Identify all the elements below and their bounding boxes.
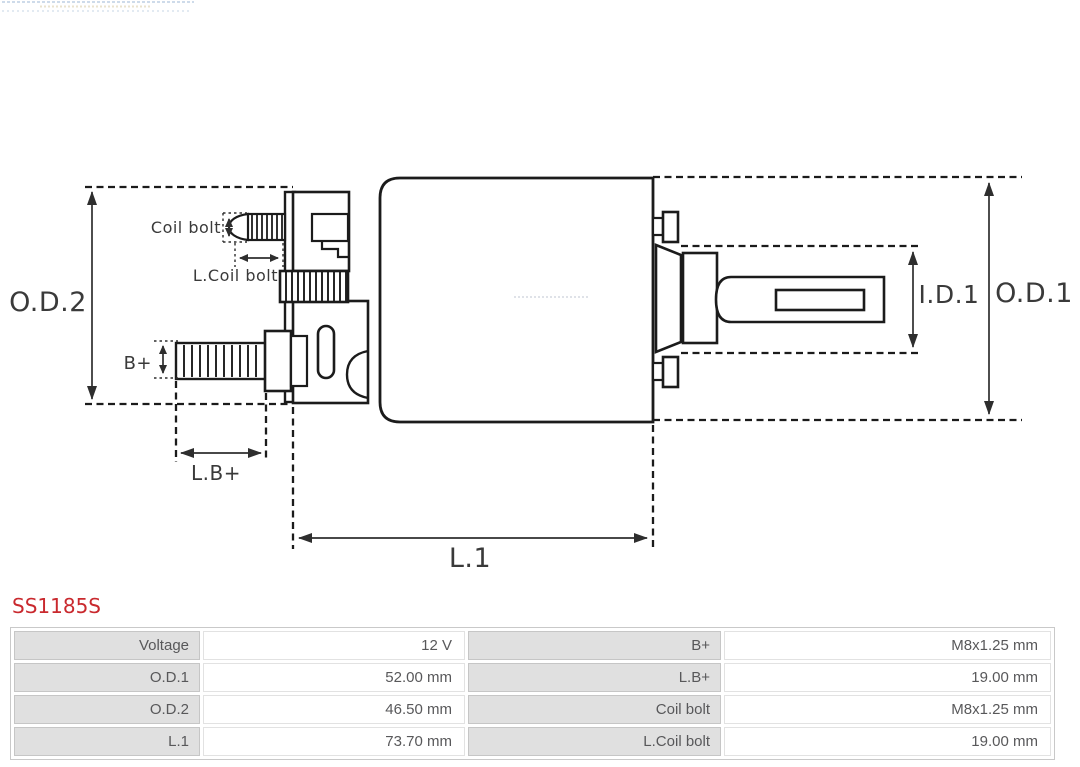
- solenoid-outline: [176, 178, 884, 422]
- table-row: L.1 73.70 mm L.Coil bolt 19.00 mm: [14, 727, 1051, 756]
- table-row: O.D.1 52.00 mm L.B+ 19.00 mm: [14, 663, 1051, 692]
- table-row: O.D.2 46.50 mm Coil bolt M8x1.25 mm: [14, 695, 1051, 724]
- spec-label-cell: Voltage: [14, 631, 200, 660]
- lb-label: L.B+: [191, 461, 241, 485]
- solenoid-technical-drawing: O.D.2 O.D.1 I.D.1 L.1 L.B+ B+ Coil bolt …: [0, 0, 1080, 592]
- housing-notch: [312, 214, 348, 241]
- od1-label: O.D.1: [995, 278, 1073, 309]
- spec-value-cell: M8x1.25 mm: [724, 631, 1051, 660]
- coil-bolt-sleeve: [280, 271, 348, 302]
- spec-label-cell: L.1: [14, 727, 200, 756]
- spec-value-cell: 19.00 mm: [724, 727, 1051, 756]
- spec-label-cell: L.B+: [468, 663, 721, 692]
- spec-value-cell: 19.00 mm: [724, 663, 1051, 692]
- rear-terminal-top: [653, 212, 678, 242]
- spec-value-cell: M8x1.25 mm: [724, 695, 1051, 724]
- b-plus-nut: [265, 331, 291, 391]
- product-diagram-page: O.D.2 O.D.1 I.D.1 L.1 L.B+ B+ Coil bolt …: [0, 0, 1080, 767]
- spec-value-cell: 12 V: [203, 631, 465, 660]
- id1-label: I.D.1: [919, 280, 980, 309]
- b-plus-insulator: [318, 326, 334, 378]
- spec-label-cell: O.D.1: [14, 663, 200, 692]
- plunger-slot: [776, 290, 864, 310]
- spec-table: Voltage 12 V B+ M8x1.25 mm O.D.1 52.00 m…: [10, 627, 1055, 760]
- coil-bolt-label: Coil bolt: [151, 218, 221, 237]
- corner-watermark: [0, 0, 196, 13]
- coil-bolt-stud: [229, 214, 285, 240]
- spec-value-cell: 73.70 mm: [203, 727, 465, 756]
- table-row: Voltage 12 V B+ M8x1.25 mm: [14, 631, 1051, 660]
- spec-value-cell: 52.00 mm: [203, 663, 465, 692]
- rear-cap: [656, 245, 681, 352]
- l-coil-bolt-label: L.Coil bolt: [193, 266, 278, 285]
- spec-label-cell: Coil bolt: [468, 695, 721, 724]
- rear-terminal-bottom: [653, 357, 678, 387]
- spec-label-cell: L.Coil bolt: [468, 727, 721, 756]
- l1-label: L.1: [449, 543, 491, 574]
- spec-label-cell: B+: [468, 631, 721, 660]
- solenoid-body: [380, 178, 653, 422]
- product-code: SS1185S: [12, 594, 1080, 618]
- spec-value-cell: 46.50 mm: [203, 695, 465, 724]
- b-plus-washer: [291, 336, 307, 386]
- spec-label-cell: O.D.2: [14, 695, 200, 724]
- rear-bushing: [683, 253, 717, 343]
- bplus-label: B+: [124, 353, 152, 374]
- od2-label: O.D.2: [9, 287, 87, 318]
